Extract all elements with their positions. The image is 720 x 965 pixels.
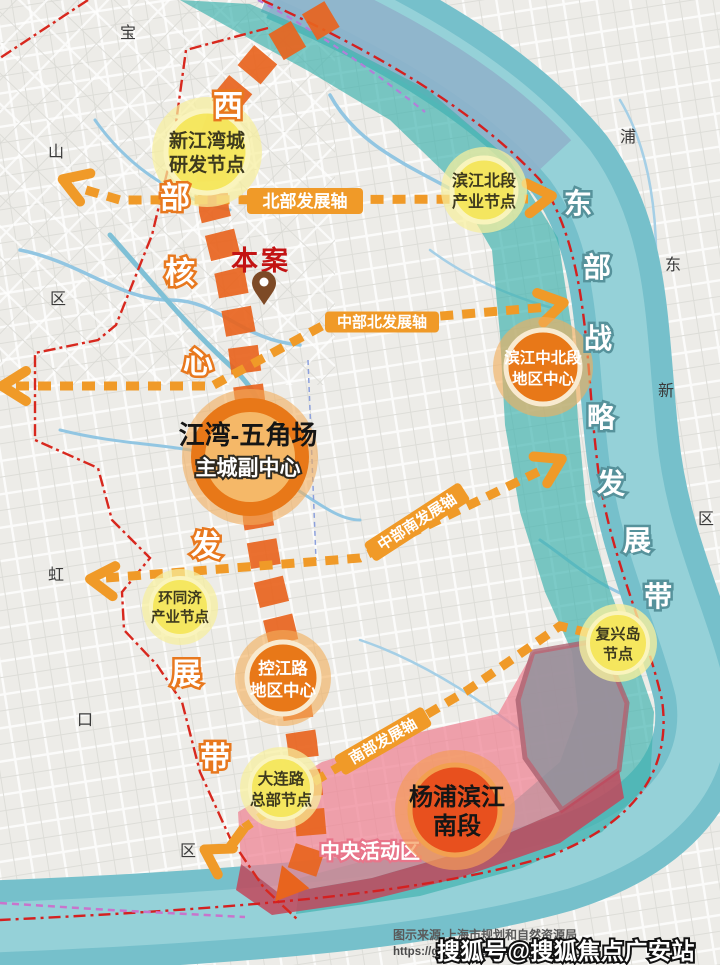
node-binjiang-north: 滨江北段 产业节点 (441, 147, 527, 233)
svg-text:控江路: 控江路 (258, 658, 308, 678)
center-node-title: 江湾-五角场 (179, 420, 318, 450)
svg-text:区: 区 (180, 843, 196, 860)
svg-text:战: 战 (584, 323, 612, 354)
svg-text:滨江中北段: 滨江中北段 (504, 348, 582, 367)
svg-text:带: 带 (200, 742, 230, 775)
svg-text:大连路: 大连路 (258, 769, 305, 788)
svg-text:展: 展 (171, 658, 201, 691)
svg-text:心: 心 (183, 347, 213, 380)
svg-text:区: 区 (50, 291, 66, 308)
svg-text:东: 东 (564, 187, 592, 219)
svg-text:产业节点: 产业节点 (452, 192, 516, 211)
center-node-subtitle: 主城副中心 (196, 456, 301, 480)
svg-text:复兴岛: 复兴岛 (594, 625, 640, 643)
svg-text:带: 带 (644, 581, 672, 612)
svg-text:新: 新 (658, 382, 674, 400)
svg-text:地区中心: 地区中心 (250, 680, 317, 700)
map-pin-hole (260, 278, 269, 287)
svg-text:发: 发 (596, 467, 625, 499)
node-huantongji: 环同济 产业节点 (142, 569, 218, 645)
svg-text:产业节点: 产业节点 (151, 608, 209, 626)
svg-text:部: 部 (160, 181, 190, 215)
node-binjiang-mid-north: 滨江中北段 地区中心 (493, 317, 593, 417)
node-fuxing-island: 复兴岛 节点 (579, 604, 657, 682)
node-kongjiang-road: 控江路 地区中心 (235, 630, 331, 726)
svg-text:虹: 虹 (48, 566, 64, 584)
axis-mid-north-text: 中部北发展轴 (337, 313, 427, 331)
axis-label-mid-north: 中部北发展轴 (325, 312, 439, 333)
svg-text:研发节点: 研发节点 (169, 153, 245, 176)
svg-text:略: 略 (587, 402, 616, 433)
project-marker-label: 本案 (231, 245, 291, 276)
svg-text:山: 山 (48, 143, 64, 161)
south-node-line1: 杨浦滨江 (409, 783, 505, 811)
svg-text:口: 口 (77, 712, 93, 729)
node-yangpu-riverside-south: 杨浦滨江 南段 (395, 750, 515, 870)
node-dalian-road: 大连路 总部节点 (240, 747, 322, 829)
svg-text:节点: 节点 (603, 645, 633, 663)
svg-text:东: 东 (665, 256, 681, 274)
svg-text:核: 核 (165, 257, 195, 290)
svg-text:部: 部 (583, 252, 611, 283)
axis-label-north: 北部发展轴 (247, 188, 363, 214)
svg-text:区: 区 (698, 511, 714, 528)
svg-text:发: 发 (190, 530, 221, 563)
svg-text:总部节点: 总部节点 (250, 790, 313, 809)
axis-north-text: 北部发展轴 (263, 191, 348, 211)
svg-text:新江湾城: 新江湾城 (169, 129, 245, 152)
svg-text:地区中心: 地区中心 (512, 369, 575, 388)
svg-text:展: 展 (623, 525, 651, 556)
svg-text:宝: 宝 (120, 24, 136, 42)
watermark: 搜狐号@搜狐焦点广安站 (437, 938, 695, 964)
south-node-line2: 南段 (433, 812, 481, 840)
svg-text:浦: 浦 (620, 128, 636, 146)
svg-text:西: 西 (213, 90, 243, 123)
planning-map: 北部发展轴 中部北发展轴 中部南发展轴 南部发展轴 中央活动区 江湾-五角场 主… (0, 0, 720, 965)
svg-text:滨江北段: 滨江北段 (452, 171, 517, 190)
svg-text:环同济: 环同济 (158, 589, 202, 607)
